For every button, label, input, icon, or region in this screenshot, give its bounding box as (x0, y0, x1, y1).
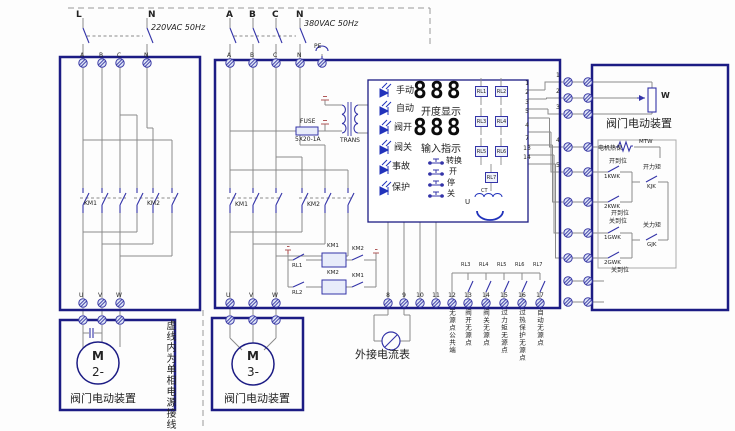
contactor-label-km1: KM1 (235, 202, 248, 208)
terminal-number: 14 (480, 293, 492, 299)
contact-relay-label: RL3 (461, 263, 470, 268)
led-label-fault: 事故 (392, 163, 410, 172)
contactor-label-km2: KM2 (307, 202, 320, 208)
led-label-protect: 保护 (392, 184, 410, 193)
ct-label: CT (481, 189, 488, 194)
phase-label-n2: N (296, 11, 304, 20)
voltage-left-label: 220VAC 50Hz (151, 24, 205, 32)
relay-contact-label: RL1 (292, 264, 302, 270)
limit-switch-label: 1GWK (604, 236, 621, 242)
terminal-number: 11 (430, 293, 442, 299)
terminal-label-pe: PE (314, 44, 321, 50)
led-label-valve-close: 阀关 (394, 144, 412, 153)
terminal-label: V (249, 293, 253, 299)
right-actuator-title: 阀门电动装置 (606, 118, 672, 129)
wire-number: 1 (556, 73, 560, 79)
wire-number: 5 (556, 163, 560, 169)
relay-contact-label: RL2 (292, 291, 302, 297)
terminal-label: N (144, 53, 149, 59)
ammeter-label: 外接电流表 (355, 349, 410, 360)
pin-number: 5 (522, 109, 532, 115)
coil-label: KM2 (327, 271, 339, 277)
terminal-label: N (297, 53, 302, 59)
fuse-label: FUSE (300, 119, 315, 125)
led-label-auto: 自动 (396, 105, 414, 114)
thermal-switch-label: MTW (639, 140, 653, 146)
terminal-number: 10 (414, 293, 426, 299)
phase-label-b: B (249, 11, 256, 20)
close-torque-label: 关力矩 (643, 223, 661, 229)
potentiometer-wiper-arrow (639, 95, 645, 101)
terminal-number: 12 (446, 293, 458, 299)
motor2-caption: 阀门电动装置 (70, 393, 136, 404)
transformer-label: TRANS (340, 138, 360, 144)
terminal-function-label: 无源点公共端 (448, 309, 455, 367)
terminal-number: 8 (382, 293, 394, 299)
coil-label: KM1 (327, 244, 339, 250)
led-label-valve-open: 阀开 (394, 124, 412, 133)
terminal-label: B (250, 53, 254, 59)
wire-number: 3 (556, 105, 560, 111)
left-cabinet-box (60, 57, 200, 310)
single-phase-note: 虚线内为单相电源接线 (164, 320, 174, 430)
potentiometer-symbol (648, 88, 656, 112)
contact-relay-label: RL7 (533, 263, 542, 268)
terminal-function-label: 过热保护无源点 (518, 309, 525, 367)
contactor-label-km1: KM1 (84, 201, 97, 207)
phase-label-l: L (76, 11, 82, 20)
pin-number: 7 (522, 136, 532, 142)
pin-number: 2 (522, 90, 532, 96)
contactor-coil-km2 (322, 280, 346, 294)
pin-number: 3 (522, 100, 532, 106)
terminal-function-label: 阀关无源点 (482, 309, 489, 367)
terminal-label: A (227, 53, 231, 59)
led-label-manual: 手动 (396, 87, 414, 96)
open-limit-label: 开到位 (611, 211, 629, 217)
close-limit-label: 关到位 (609, 219, 627, 225)
contact-relay-label: RL6 (515, 263, 524, 268)
limit-switch-label: 2GWK (604, 261, 621, 267)
motor3-m-label: M (246, 350, 260, 362)
pin-number: 14 (522, 155, 532, 161)
transformer (342, 102, 358, 136)
terminal-number: 15 (498, 293, 510, 299)
close-limit-label: 关到位 (611, 268, 629, 274)
pin-number: 13 (522, 146, 532, 152)
terminal-number: 13 (462, 293, 474, 299)
button-label-stop: 停 (447, 179, 455, 187)
terminal-label: A (80, 53, 84, 59)
motor2-m-label: M (91, 350, 105, 362)
terminal-number: 9 (398, 293, 410, 299)
contactor-coil-km1 (322, 253, 346, 267)
terminal-label: C (117, 53, 121, 59)
contact-relay-label: RL5 (497, 263, 506, 268)
ct-u-label: U (465, 199, 470, 206)
relay-box: RL5 (475, 146, 488, 157)
pin-number: 4 (522, 123, 532, 129)
terminal-function-label: 自动无源点 (536, 309, 543, 367)
torque-switch-label: GJK (647, 243, 657, 249)
interlock-label: KM1 (352, 274, 364, 280)
terminal-function-label: 过力矩无源点 (500, 309, 507, 367)
contact-relay-label: RL4 (479, 263, 488, 268)
opening-display: 888 (413, 80, 464, 103)
wire-number: 4 (556, 138, 560, 144)
terminal-label: B (99, 53, 103, 59)
limit-switch-label: 1KWK (604, 175, 620, 181)
fuse-symbol (296, 127, 318, 135)
relay-box: RL2 (495, 86, 508, 97)
terminal-number: 16 (516, 293, 528, 299)
wire-number: 2 (556, 89, 560, 95)
phase-label-n: N (148, 11, 156, 20)
voltage-main-label: 380VAC 50Hz (304, 20, 358, 28)
terminal-label: U (79, 293, 83, 299)
relay-box: RL4 (495, 116, 508, 127)
terminal-label: U (226, 293, 230, 299)
input-display: 888 (413, 117, 464, 140)
potentiometer-label: W (661, 92, 670, 100)
relay-box: RL1 (475, 86, 488, 97)
wiring-diagram-page: L N 220VAC 50Hz A B C N 380VAC 50Hz A B … (0, 0, 735, 431)
contactor-label-km2: KM2 (147, 201, 160, 207)
thermal-protect-label: 电机热保 (598, 146, 622, 152)
phase-label-c: C (272, 11, 279, 20)
pin-number: 1 (522, 81, 532, 87)
torque-switch-label: KJK (647, 185, 656, 191)
terminal-label: V (98, 293, 102, 299)
terminal-number: 17 (534, 293, 546, 299)
phase-label-a: A (226, 11, 233, 20)
button-label-open: 开 (449, 168, 457, 176)
relay-box: RL7 (485, 172, 498, 183)
terminal-label: W (272, 293, 278, 299)
button-label-close: 关 (447, 190, 455, 198)
open-torque-label: 开力矩 (643, 165, 661, 171)
fuse-rating-label: 5X20-1A (295, 137, 321, 143)
motor2-number-label: 2- (89, 366, 107, 378)
input-display-caption: 输入指示 (421, 145, 461, 155)
open-limit-label: 开到位 (609, 159, 627, 165)
terminal-label: W (116, 293, 122, 299)
terminal-label: C (273, 53, 277, 59)
relay-box: RL6 (495, 146, 508, 157)
motor3-caption: 阀门电动装置 (224, 393, 290, 404)
relay-box: RL3 (475, 116, 488, 127)
motor3-number-label: 3- (244, 366, 262, 378)
button-label-switch: 转换 (446, 157, 462, 165)
interlock-label: KM2 (352, 247, 364, 253)
terminal-function-label: 阀开无源点 (464, 309, 471, 367)
